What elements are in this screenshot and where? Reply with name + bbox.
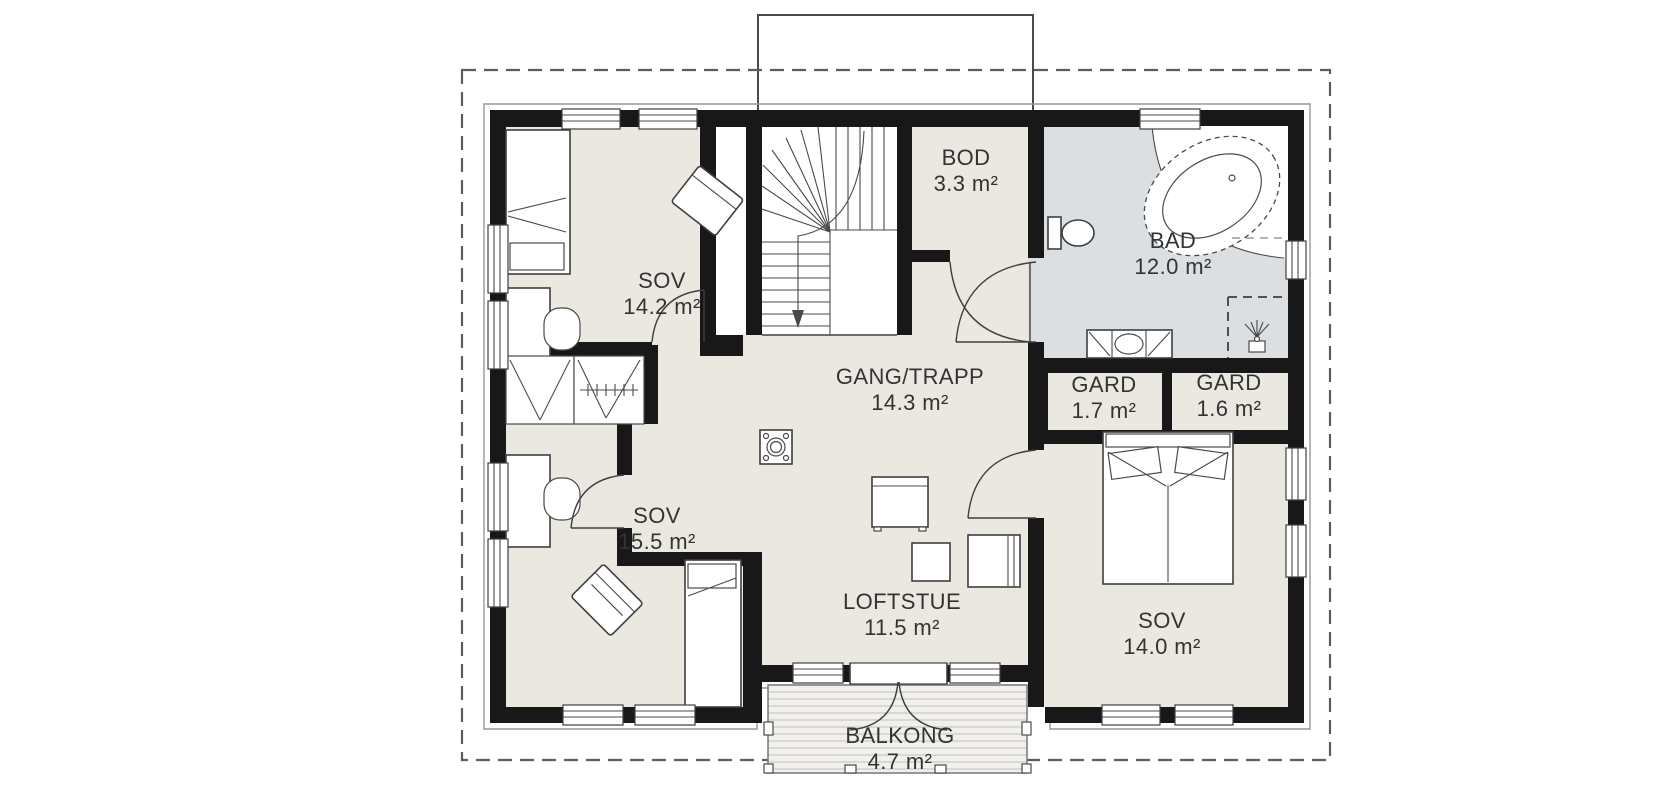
window — [563, 705, 623, 725]
room-label-bad: BAD 12.0 m² — [1043, 228, 1303, 280]
window — [950, 663, 1000, 683]
wardrobe — [506, 356, 644, 424]
bed-pillow — [688, 564, 736, 588]
headboard — [1106, 434, 1230, 447]
window — [639, 109, 697, 129]
tub-drain — [1229, 175, 1235, 181]
room-area: 1.6 m² — [1099, 396, 1359, 422]
chimney — [760, 430, 792, 464]
window — [1175, 705, 1233, 725]
room-area: 12.0 m² — [1043, 254, 1303, 280]
window — [1140, 109, 1200, 129]
window — [488, 539, 508, 607]
room-area: 14.0 m² — [1032, 634, 1292, 660]
room-area: 11.5 m² — [772, 615, 1032, 641]
window — [488, 301, 508, 369]
room-area: 14.2 m² — [532, 294, 792, 320]
room-label-gard2: GARD 1.6 m² — [1099, 370, 1359, 422]
room-label-sov3: SOV 14.0 m² — [1032, 608, 1292, 660]
window — [488, 225, 508, 293]
sofa — [872, 477, 928, 527]
floor-plan: SOV 14.2 m² BOD 3.3 m² BAD 12.0 m² GANG/… — [0, 0, 1670, 800]
room-name: SOV — [527, 503, 787, 529]
bed-pillow — [510, 243, 564, 270]
side-table — [912, 543, 950, 581]
room-name: SOV — [1032, 608, 1292, 634]
bedroom3-furniture — [1103, 432, 1233, 584]
room-name: SOV — [532, 268, 792, 294]
window — [1286, 448, 1306, 500]
room-label-sov2: SOV 15.5 m² — [527, 503, 787, 555]
room-label-loftstue: LOFTSTUE 11.5 m² — [772, 589, 1032, 641]
window — [488, 463, 508, 531]
dormer-outline — [758, 15, 1033, 112]
room-name: BOD — [836, 145, 1096, 171]
room-name: BAD — [1043, 228, 1303, 254]
room-name: LOFTSTUE — [772, 589, 1032, 615]
room-area: 15.5 m² — [527, 529, 787, 555]
room-label-balkong: BALKONG 4.7 m² — [770, 723, 1030, 775]
room-area: 4.7 m² — [770, 749, 1030, 775]
armchair — [968, 535, 1020, 587]
room-area: 3.3 m² — [836, 171, 1096, 197]
window — [1286, 525, 1306, 577]
room-label-bod: BOD 3.3 m² — [836, 145, 1096, 197]
room-label-sov1: SOV 14.2 m² — [532, 268, 792, 320]
room-name: BALKONG — [770, 723, 1030, 749]
window — [562, 109, 620, 129]
window — [1102, 705, 1160, 725]
sink-basin — [1115, 334, 1143, 354]
window — [793, 663, 843, 683]
window — [635, 705, 695, 725]
room-name: GARD — [1099, 370, 1359, 396]
